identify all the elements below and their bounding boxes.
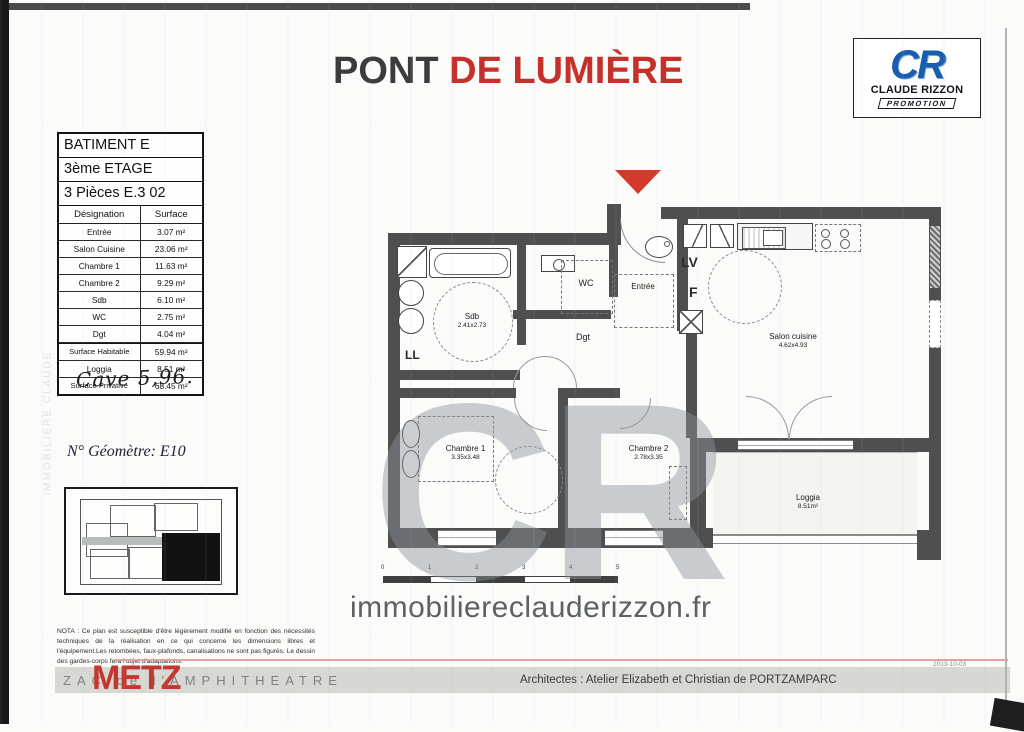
room-name: Loggia bbox=[773, 493, 843, 503]
room-name: Sdb bbox=[433, 312, 511, 322]
hob-burner bbox=[840, 239, 850, 249]
room-dims: 4.62x4.93 bbox=[738, 342, 848, 350]
handwritten-note: Cave 5,96. bbox=[76, 364, 194, 392]
kitchen-hob bbox=[815, 224, 861, 252]
cr-watermark: CR bbox=[372, 386, 724, 600]
hob-burner bbox=[821, 229, 830, 238]
table-row: Chambre 111.63 m² bbox=[59, 258, 202, 275]
washbasin-2 bbox=[398, 308, 424, 334]
row-value: 11.63 m² bbox=[141, 258, 202, 274]
entree-basin bbox=[645, 236, 673, 258]
kitchen-sink bbox=[742, 227, 786, 249]
geometre-number: N° Géomètre: E10 bbox=[67, 443, 186, 461]
table-header-row: Désignation Surface bbox=[59, 206, 202, 224]
page-title: PONT DE LUMIÈRE bbox=[333, 50, 683, 93]
door-balcony-right bbox=[929, 300, 941, 348]
room-label-wc: WC bbox=[566, 278, 606, 289]
hob-burner bbox=[840, 229, 849, 238]
total-label: Surface Habitable bbox=[59, 344, 141, 360]
row-label: Entrée bbox=[59, 224, 141, 240]
key-plan-room bbox=[128, 547, 164, 579]
hob-burner bbox=[821, 239, 831, 249]
building-label: BATIMENT E bbox=[59, 134, 202, 158]
room-label-loggia: Loggia 8.51m² bbox=[773, 493, 843, 511]
dishwasher-label: LV bbox=[681, 254, 698, 270]
logo-company-name: CLAUDE RIZZON bbox=[871, 84, 963, 96]
room-dims: 2.41x2.73 bbox=[433, 322, 511, 330]
row-value: 3.07 m² bbox=[141, 224, 202, 240]
floor-label: 3ème ETAGE bbox=[59, 158, 202, 182]
unit-label: 3 Pièces E.3 02 bbox=[59, 182, 202, 206]
salon-turning-circle bbox=[708, 250, 782, 324]
scan-side-ghost-text: IMMOBILIERE CLAUDE bbox=[43, 276, 54, 496]
col-surface: Surface bbox=[141, 206, 202, 223]
kitchen-sink-basin bbox=[763, 230, 783, 246]
loggia-railing bbox=[713, 534, 917, 544]
table-row: Dgt4.04 m² bbox=[59, 326, 202, 343]
claude-rizzon-logo: CR CLAUDE RIZZON PROMOTION bbox=[853, 38, 981, 118]
room-name: Salon cuisine bbox=[738, 332, 848, 342]
key-plan-thumbnail bbox=[64, 487, 238, 595]
washbasin-1 bbox=[398, 280, 424, 306]
footer-date: 2013-10-03 bbox=[933, 661, 966, 668]
room-name: Entrée bbox=[618, 282, 668, 292]
window-salon-right-hatch bbox=[930, 226, 940, 288]
bathtub-inner bbox=[434, 253, 508, 275]
kitchen-counter bbox=[737, 223, 813, 250]
wall-sdb-right bbox=[517, 245, 526, 345]
row-label: Sdb bbox=[59, 292, 141, 308]
room-label-sdb: Sdb 2.41x2.73 bbox=[433, 312, 511, 330]
room-label-salon: Salon cuisine 4.62x4.93 bbox=[738, 332, 848, 350]
row-label: WC bbox=[59, 309, 141, 325]
logo-monogram: CR bbox=[890, 48, 944, 82]
wall-top-right bbox=[661, 207, 941, 219]
wall-corner-bottom-right bbox=[917, 530, 941, 560]
row-value: 2.75 m² bbox=[141, 309, 202, 325]
total-value: 59.94 m² bbox=[141, 344, 202, 360]
window-loggia-bay bbox=[738, 440, 853, 450]
scan-edge-left bbox=[0, 0, 9, 724]
entree-basin-dot bbox=[664, 241, 670, 247]
bay-door-arc-left bbox=[746, 396, 789, 439]
row-value: 9.29 m² bbox=[141, 275, 202, 291]
entree-cabinet bbox=[679, 310, 703, 334]
table-row: Sdb6.10 m² bbox=[59, 292, 202, 309]
wall-entrance-jut bbox=[607, 204, 621, 245]
room-label-entree: Entrée bbox=[618, 282, 668, 292]
key-plan-highlighted-unit bbox=[162, 533, 220, 581]
fridge-label: F bbox=[689, 284, 698, 300]
col-designation: Désignation bbox=[59, 206, 141, 223]
key-plan-room bbox=[110, 505, 156, 537]
footer-pink-line bbox=[115, 659, 1008, 661]
bay-door-arc-right bbox=[789, 396, 832, 439]
room-name: WC bbox=[566, 278, 606, 289]
scan-edge-right bbox=[1005, 28, 1007, 724]
page-title-part2: DE LUMIÈRE bbox=[449, 50, 683, 92]
scan-blob-bottom-right bbox=[990, 698, 1024, 732]
bathtub bbox=[429, 248, 511, 278]
entrance-marker-triangle bbox=[615, 170, 661, 194]
unit-info-table: BATIMENT E 3ème ETAGE 3 Pièces E.3 02 Dé… bbox=[57, 132, 204, 396]
row-label: Salon Cuisine bbox=[59, 241, 141, 257]
row-label: Dgt bbox=[59, 326, 141, 342]
logo-tagline: PROMOTION bbox=[878, 98, 956, 109]
table-row: WC2.75 m² bbox=[59, 309, 202, 326]
kitchen-shaft-1 bbox=[683, 224, 707, 248]
room-label-dgt: Dgt bbox=[563, 332, 603, 343]
room-dims: 8.51m² bbox=[773, 503, 843, 511]
row-value: 6.10 m² bbox=[141, 292, 202, 308]
page-title-part1: PONT bbox=[333, 50, 439, 92]
footer-architects: Architectes : Atelier Elizabeth et Chris… bbox=[520, 674, 837, 686]
room-name: Dgt bbox=[563, 332, 603, 343]
table-total-row: Surface Habitable59.94 m² bbox=[59, 343, 202, 361]
wall-top-left bbox=[388, 233, 621, 245]
row-label: Chambre 2 bbox=[59, 275, 141, 291]
scan-edge-top bbox=[9, 3, 750, 10]
key-plan-room bbox=[154, 503, 198, 531]
shower-panel bbox=[397, 246, 427, 278]
table-row: Entrée3.07 m² bbox=[59, 224, 202, 241]
key-plan-room bbox=[90, 549, 130, 579]
website-url: immobiliereclauderizzon.fr bbox=[350, 591, 711, 625]
table-row: Salon Cuisine23.06 m² bbox=[59, 241, 202, 258]
footer-city: METZ bbox=[92, 659, 181, 698]
kitchen-shaft-2 bbox=[710, 224, 734, 248]
row-label: Chambre 1 bbox=[59, 258, 141, 274]
key-plan-corridor bbox=[82, 537, 164, 545]
table-row: Chambre 29.29 m² bbox=[59, 275, 202, 292]
row-value: 4.04 m² bbox=[141, 326, 202, 342]
row-value: 23.06 m² bbox=[141, 241, 202, 257]
